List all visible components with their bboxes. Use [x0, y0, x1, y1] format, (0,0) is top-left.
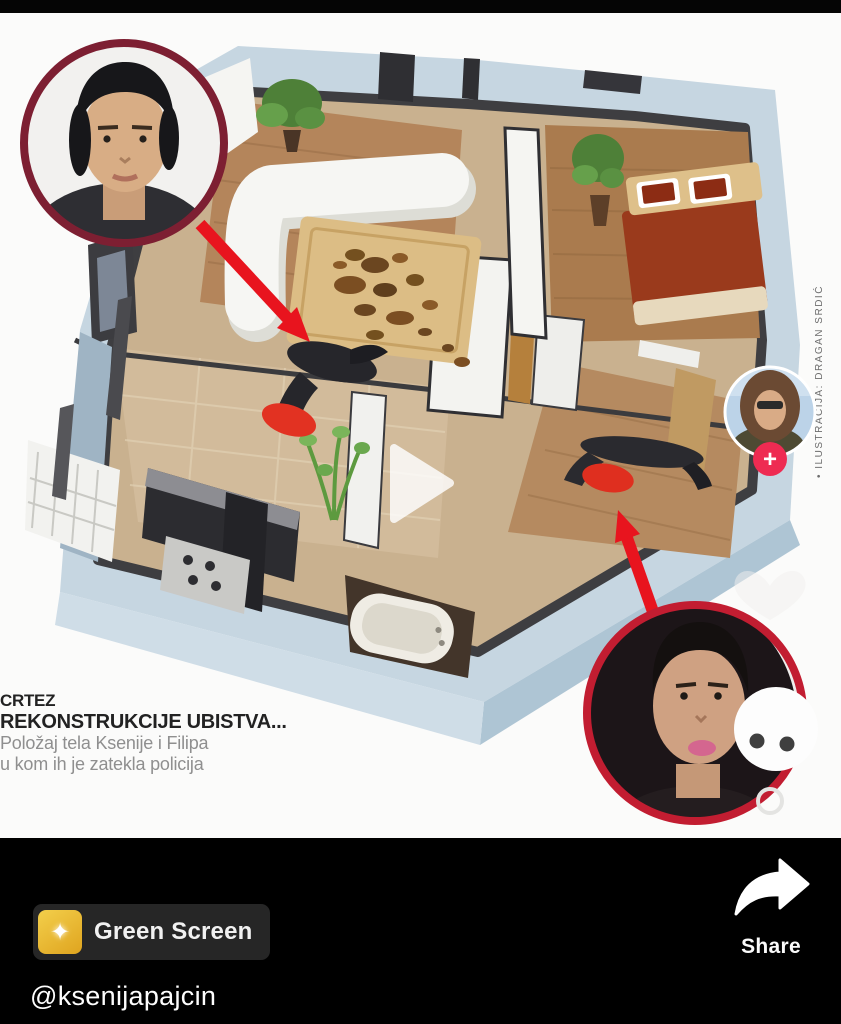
share-label: Share [729, 935, 813, 959]
caption-detail-1: Položaj tela Ksenije i Filipa [0, 734, 287, 753]
follow-plus-button[interactable]: + [753, 442, 787, 476]
caption-subtitle: REKONSTRUKCIJE UBISTVA... [0, 712, 287, 733]
svg-text:+: + [763, 446, 777, 473]
caption-block: CRTEZ REKONSTRUKCIJE UBISTVA... Položaj … [0, 692, 287, 774]
caption-title: CRTEZ [0, 692, 287, 710]
green-screen-effect-chip[interactable]: ✦ Green Screen [33, 904, 270, 960]
share-button[interactable]: Share [729, 858, 813, 959]
sparkle-glyph: ✦ [50, 918, 70, 947]
caption-detail-2: u kom ih je zatekla policija [0, 755, 287, 774]
username-link[interactable]: @ksenijapajcin [30, 981, 216, 1012]
like-heart-icon[interactable] [734, 571, 805, 620]
share-arrow-icon [732, 858, 810, 922]
top-letterbox-bar [0, 0, 841, 13]
bottom-bar: ✦ Green Screen Share @ksenijapajcin [0, 838, 841, 1024]
photo-credit: • ILUSTRACIJA: DRAGAN SRDIĆ [812, 285, 825, 478]
sparkle-icon: ✦ [38, 910, 82, 954]
comment-bubble-icon[interactable] [734, 687, 818, 771]
bed [617, 162, 776, 326]
tiktok-screenshot: • ILUSTRACIJA: DRAGAN SRDIĆ [0, 0, 841, 1024]
effect-chip-label: Green Screen [94, 918, 252, 946]
